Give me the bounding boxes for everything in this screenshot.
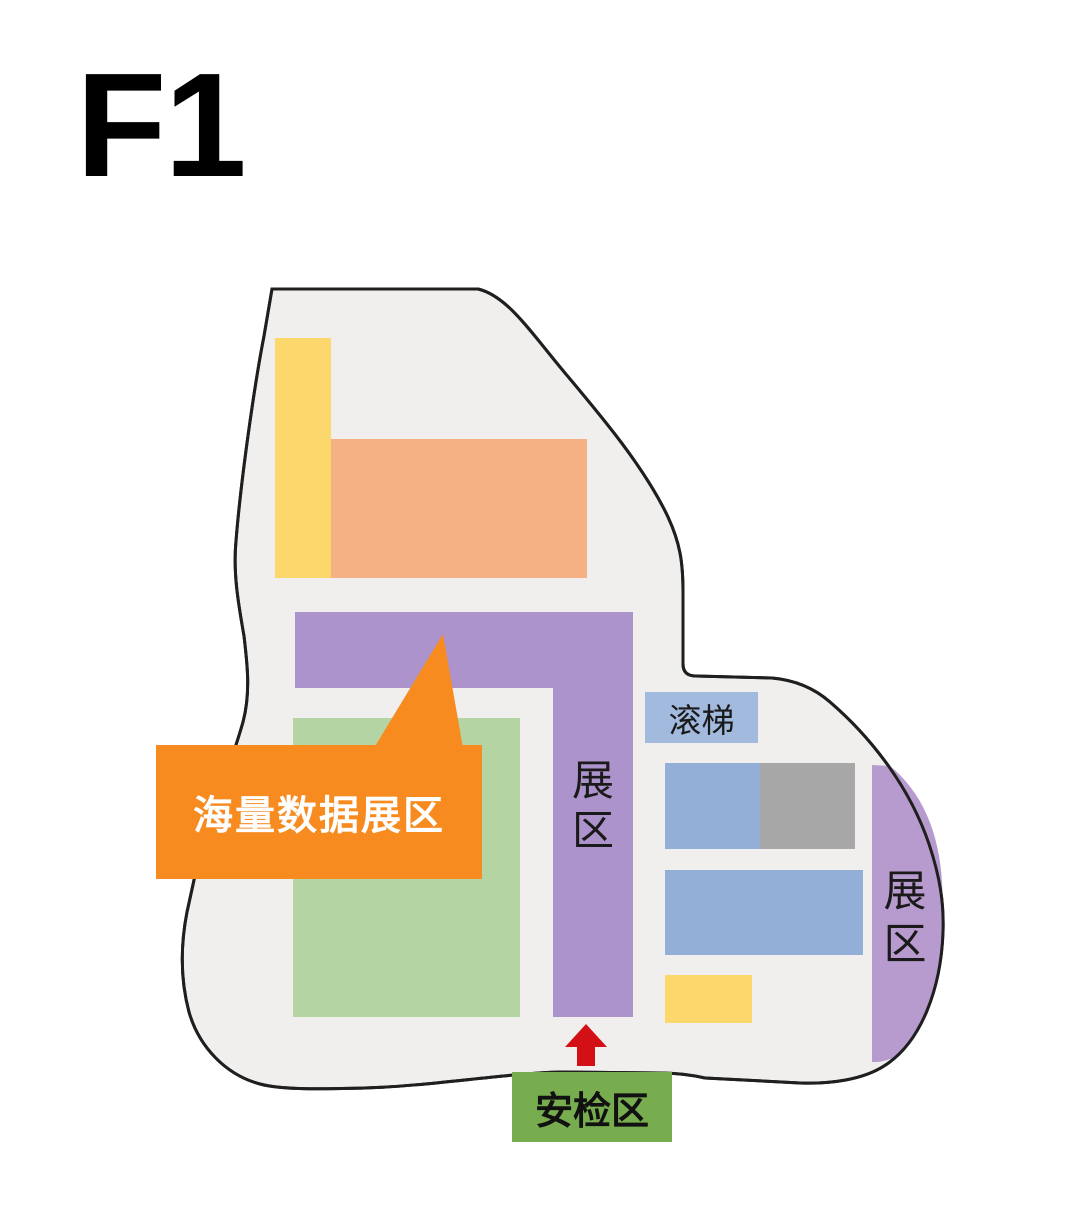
zone-blue-wide	[665, 870, 863, 955]
security-check-label: 安检区	[512, 1072, 672, 1142]
zone-gray	[760, 763, 855, 849]
floor-title: F1	[76, 52, 245, 200]
floor-plan-f1: F1 海量数据展区 滚梯 展区 展区 安检区	[0, 0, 1080, 1231]
escalator-label: 滚梯	[645, 692, 758, 743]
corridor-exhibition-label: 展区	[570, 756, 616, 856]
zone-blue-left	[665, 763, 760, 849]
zone-yellow-small	[665, 975, 752, 1023]
right-exhibition-label: 展区	[882, 866, 928, 972]
zone-peach	[331, 439, 587, 578]
massive-data-callout-label: 海量数据展区	[156, 745, 482, 879]
zone-yellow-tall	[275, 338, 331, 578]
